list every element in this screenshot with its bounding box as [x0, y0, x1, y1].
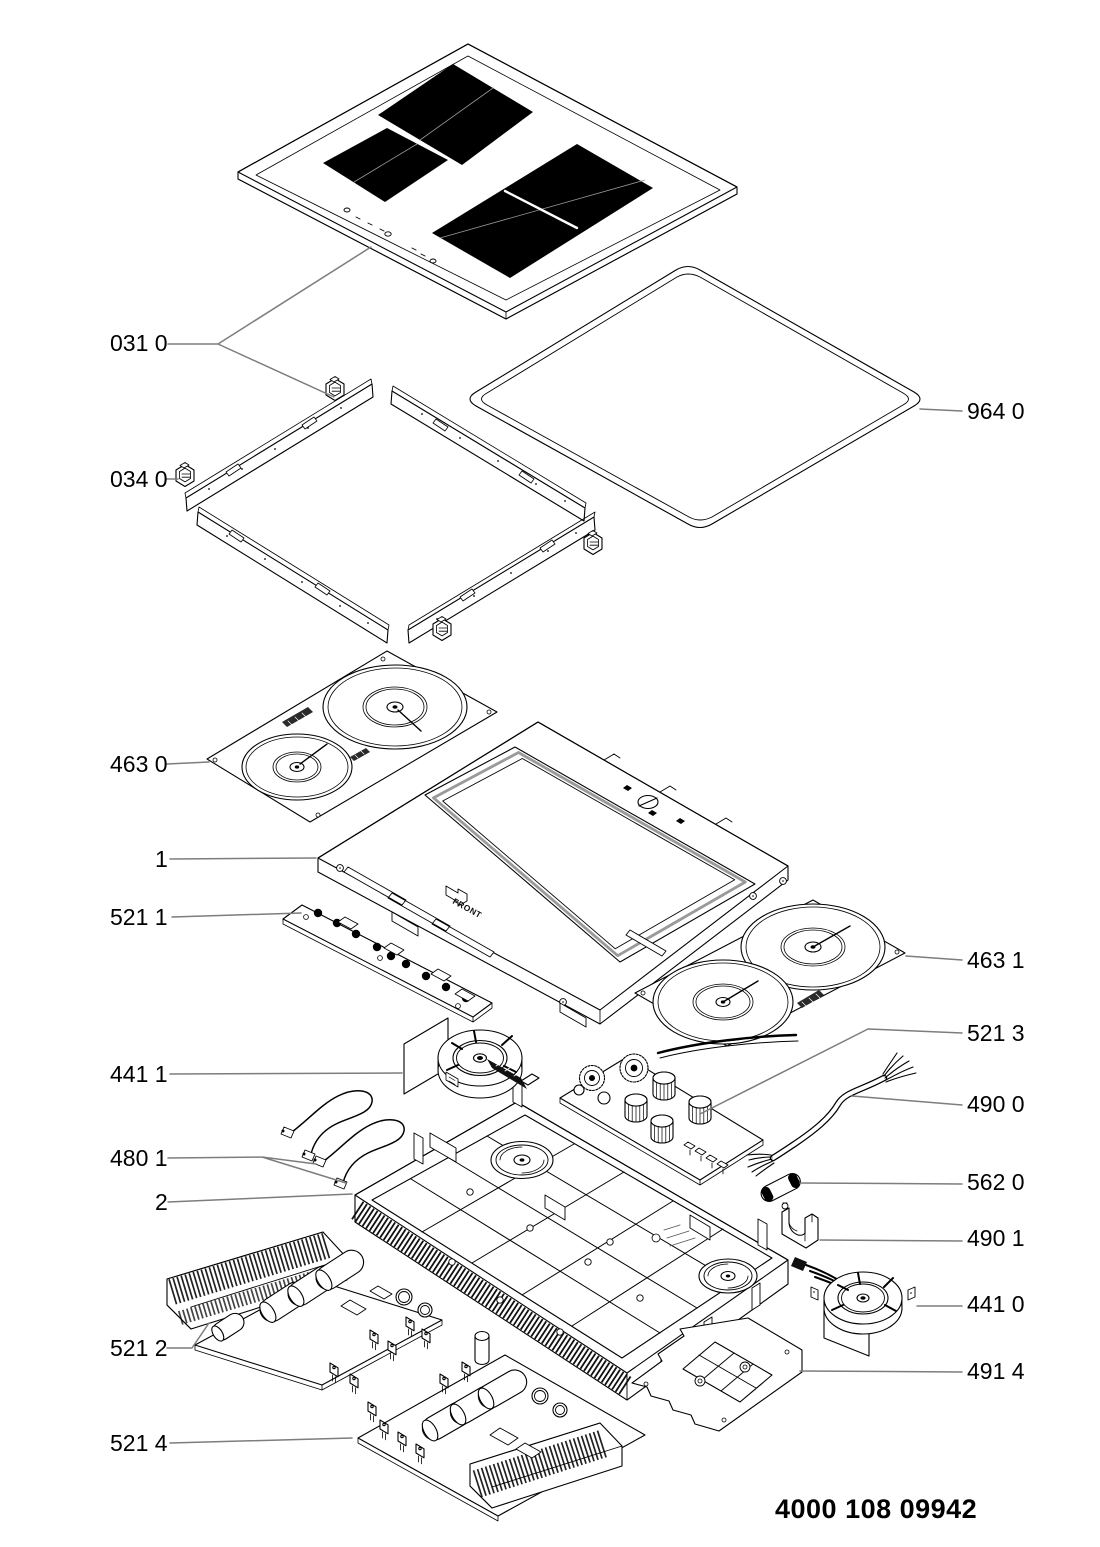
exploded-parts-diagram: FRONT: [0, 0, 1100, 1547]
part-label-463-0: 463 0: [110, 751, 168, 777]
induction-coil: [242, 734, 352, 800]
toroid-coil: [620, 1054, 648, 1082]
part-label-521-1: 521 1: [110, 904, 168, 930]
fan-recess: [491, 1142, 553, 1179]
wire-harness-pair: [281, 1091, 404, 1189]
mounting-rails: [176, 377, 602, 644]
part-label-521-3: 521 3: [967, 1020, 1025, 1046]
part-label-441-1: 441 1: [110, 1061, 168, 1087]
part-label-490-0: 490 0: [967, 1091, 1025, 1117]
fuse: [758, 1171, 803, 1204]
document-number: 4000 108 09942: [775, 1494, 977, 1524]
part-label-491-4: 491 4: [967, 1358, 1025, 1384]
cable-clamp-bracket: [782, 1203, 818, 1248]
fixing-clip: [176, 463, 194, 487]
supply-cable: [747, 1053, 916, 1176]
fan-recess: [699, 1259, 757, 1293]
capacitor: [475, 1332, 489, 1365]
induction-coil: [323, 665, 467, 749]
part-label-521-2: 521 2: [110, 1335, 168, 1361]
part-label-441-0: 441 0: [967, 1291, 1025, 1317]
fixing-clip: [326, 377, 344, 401]
part-label-480-1: 480 1: [110, 1145, 168, 1171]
part-label-034-0: 034 0: [110, 466, 168, 492]
part-label-490-1: 490 1: [967, 1225, 1025, 1251]
cooling-fan-bottom: [791, 1257, 915, 1356]
part-label-2: 2: [155, 1189, 168, 1215]
part-label-562-0: 562 0: [967, 1169, 1025, 1195]
glass-ceramic-panel: [238, 44, 737, 319]
part-label-463-1: 463 1: [967, 947, 1025, 973]
part-label-1: 1: [155, 846, 168, 872]
part-label-031-0: 031 0: [110, 330, 168, 356]
part-label-521-4: 521 4: [110, 1430, 168, 1456]
power-board-left: [167, 1232, 442, 1394]
part-label-964-0: 964 0: [967, 398, 1025, 424]
induction-coil: [653, 960, 793, 1044]
